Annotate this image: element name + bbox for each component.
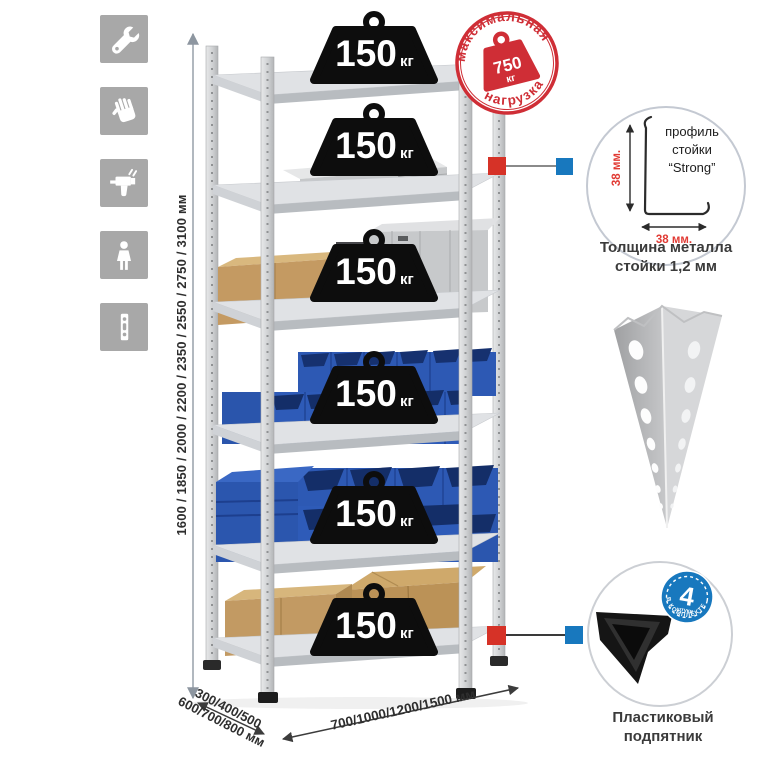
profile-callout-connector: [488, 157, 573, 175]
plastic-foot-image: 4 штуки в комплекте: [588, 562, 732, 706]
corner-post-image: [614, 306, 722, 528]
svg-text:кг: кг: [400, 53, 414, 70]
svg-text:150: 150: [335, 33, 397, 74]
plastic-foot-line1: Пластиковый: [583, 708, 743, 727]
svg-text:150: 150: [335, 493, 397, 534]
height-options-label: 1600 / 1850 / 2000 / 2200 / 2350 / 2550 …: [174, 25, 190, 705]
plastic-foot-line2: подпятник: [583, 727, 743, 746]
svg-text:кг: кг: [400, 393, 414, 410]
shelving-infographic: 150 кг 150 кг 150 кг 150 кг: [0, 0, 765, 765]
svg-text:150: 150: [335, 251, 397, 292]
front-left-post: [261, 57, 274, 700]
front-right-post: [459, 50, 472, 696]
svg-text:кг: кг: [400, 271, 414, 288]
load-badge-1: 150 кг: [314, 14, 434, 80]
front-left-foot: [258, 692, 278, 703]
svg-text:профиль: профиль: [665, 124, 719, 139]
back-left-post: [206, 46, 218, 668]
load-badge-2: 150 кг: [314, 106, 434, 172]
back-left-foot: [203, 660, 221, 670]
svg-text:150: 150: [335, 373, 397, 414]
svg-text:кг: кг: [400, 513, 414, 530]
svg-text:“Strong”: “Strong”: [669, 160, 716, 175]
shelf-2: [213, 173, 500, 214]
svg-text:кг: кг: [400, 145, 414, 162]
svg-text:150: 150: [335, 605, 397, 646]
metal-thickness-caption: Толщина металла стойки 1,2 мм: [583, 238, 749, 276]
back-right-foot: [490, 656, 508, 666]
metal-thickness-line2: стойки 1,2 мм: [583, 257, 749, 276]
svg-text:стойки: стойки: [672, 142, 712, 157]
main-illustration: 150 кг 150 кг 150 кг 150 кг: [0, 0, 765, 765]
metal-thickness-line1: Толщина металла: [583, 238, 749, 257]
svg-text:150: 150: [335, 125, 397, 166]
plastic-foot-caption: Пластиковый подпятник: [583, 708, 743, 746]
svg-text:38 мм.: 38 мм.: [611, 150, 623, 186]
foot-callout-connector: [487, 626, 583, 645]
svg-text:кг: кг: [400, 625, 414, 642]
